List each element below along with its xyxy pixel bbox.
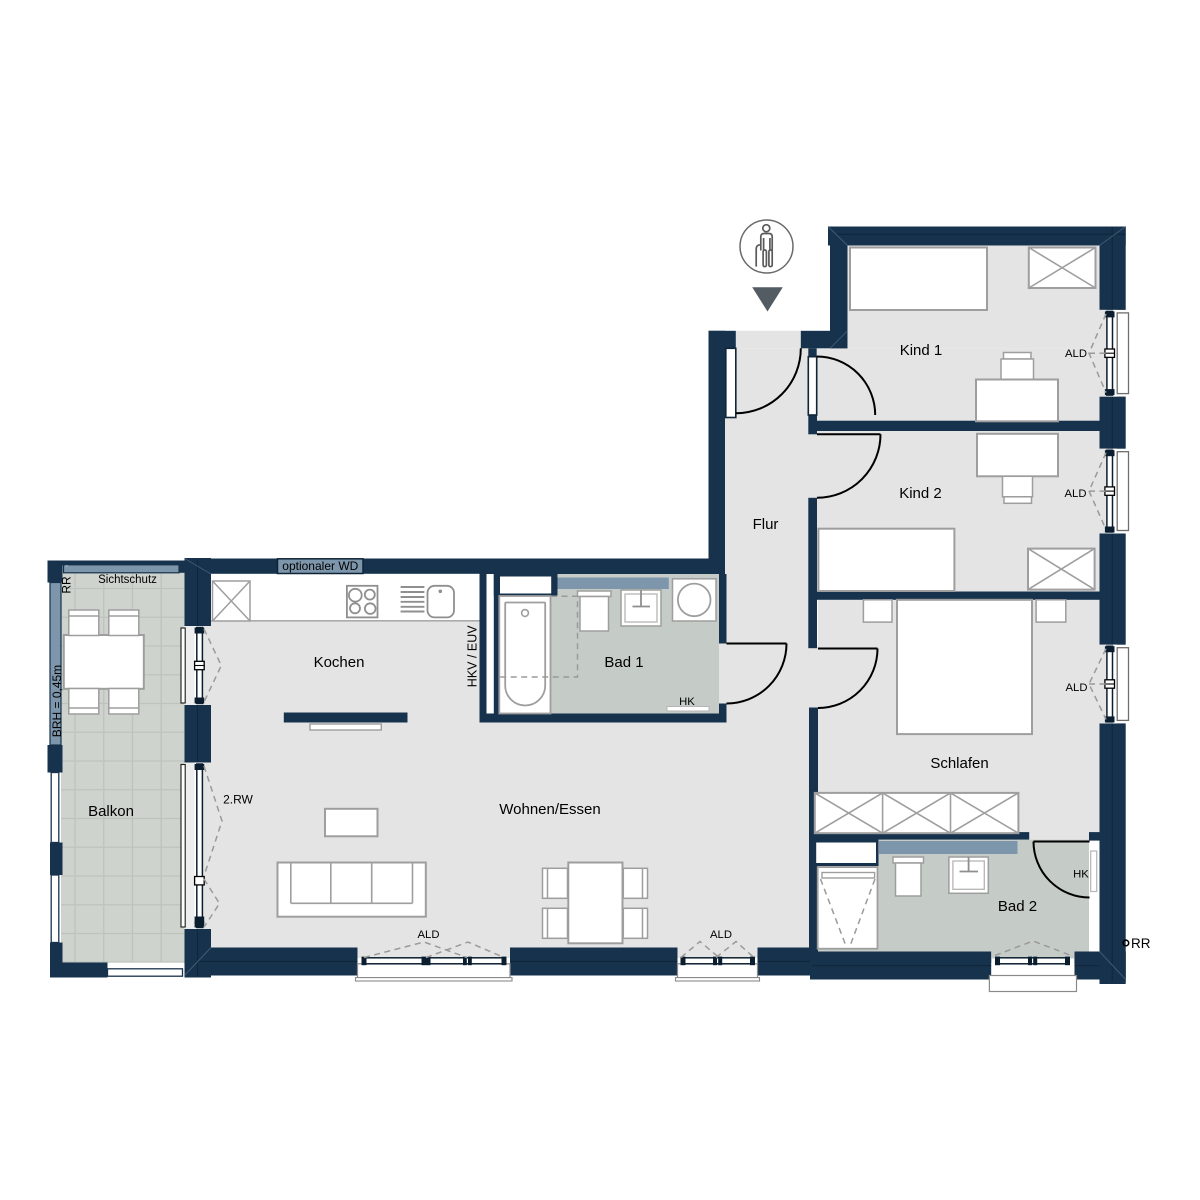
svg-text:Flur: Flur <box>753 516 779 533</box>
svg-text:Sichtschutz: Sichtschutz <box>98 574 157 586</box>
svg-text:RR: RR <box>60 576 74 594</box>
svg-text:ALD: ALD <box>1065 488 1087 500</box>
svg-text:Kind 2: Kind 2 <box>899 485 942 502</box>
svg-text:Balkon: Balkon <box>88 803 134 820</box>
svg-text:ALD: ALD <box>1065 348 1087 360</box>
svg-text:HK: HK <box>679 696 695 708</box>
svg-text:ALD: ALD <box>418 929 440 941</box>
svg-text:ALD: ALD <box>1066 682 1088 694</box>
svg-text:HK: HK <box>1073 869 1089 881</box>
svg-text:Bad 2: Bad 2 <box>998 898 1037 915</box>
svg-text:Bad 1: Bad 1 <box>604 654 643 671</box>
svg-text:BRH = 0,45m: BRH = 0,45m <box>50 665 64 737</box>
svg-text:Kind 1: Kind 1 <box>900 342 943 359</box>
svg-text:RR: RR <box>1131 936 1151 951</box>
svg-text:Kochen: Kochen <box>314 654 365 671</box>
svg-text:ALD: ALD <box>710 929 732 941</box>
svg-text:Schlafen: Schlafen <box>930 755 988 772</box>
svg-text:HKV / EUV: HKV / EUV <box>466 625 480 687</box>
svg-text:Wohnen/Essen: Wohnen/Essen <box>499 801 600 818</box>
svg-text:optionaler WD: optionaler WD <box>282 559 358 573</box>
svg-text:2.RW: 2.RW <box>223 793 253 807</box>
